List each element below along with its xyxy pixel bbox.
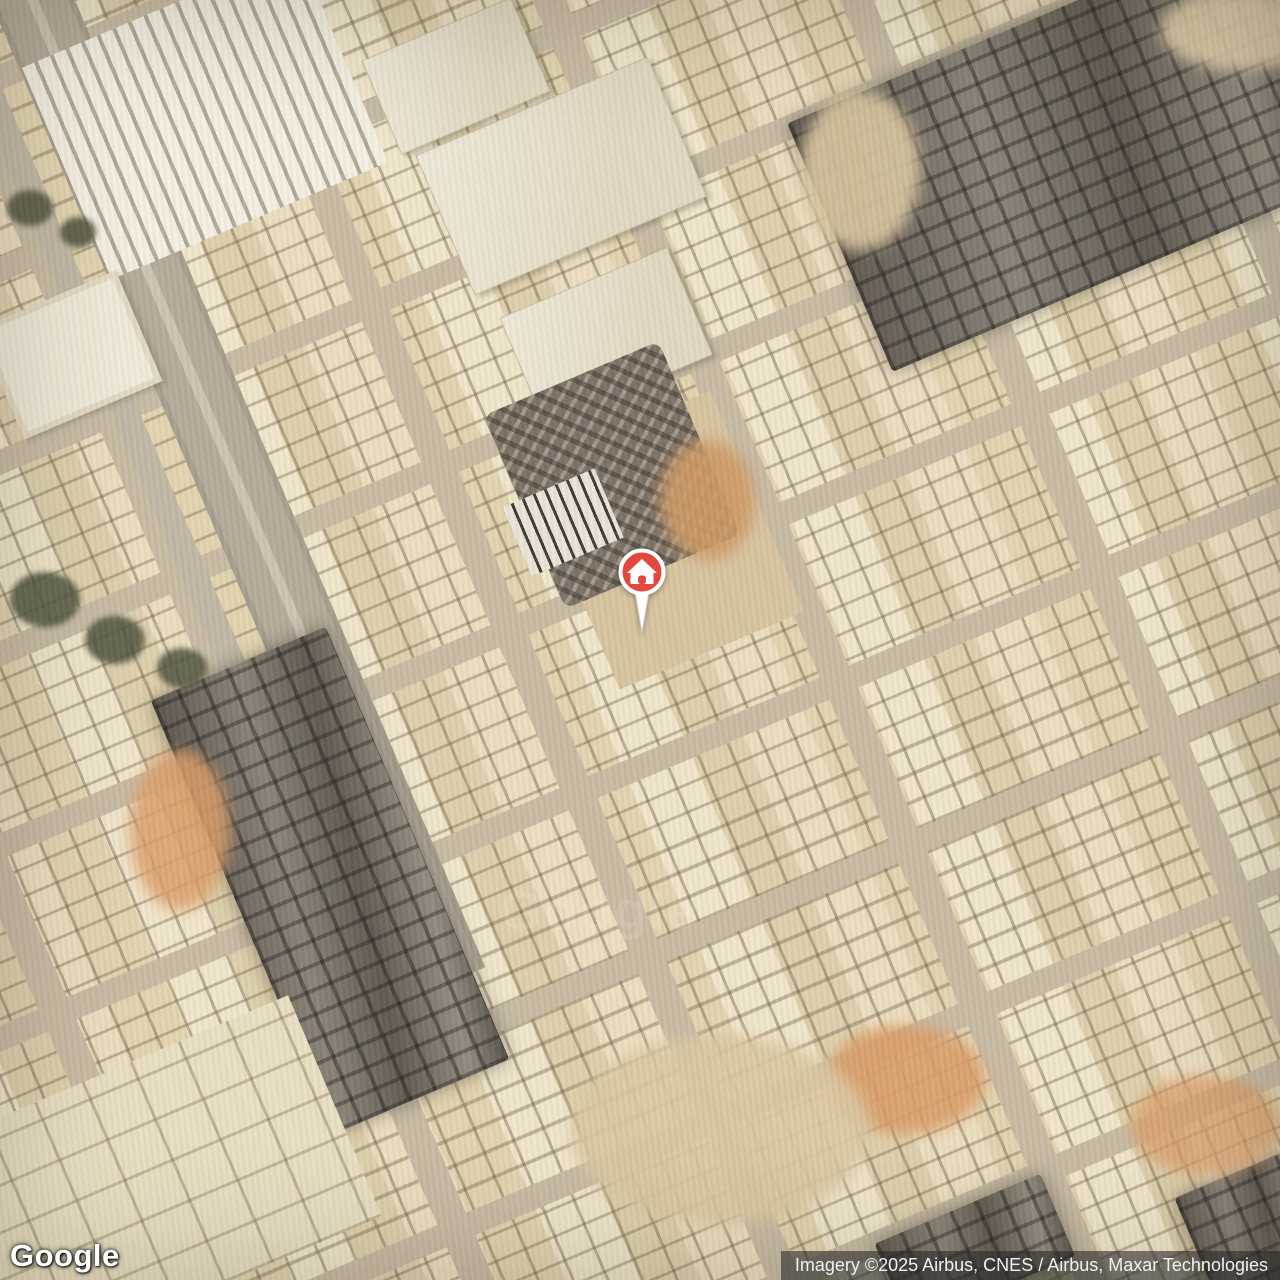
home-marker-pin — [616, 546, 668, 634]
house-door-notch — [638, 576, 646, 585]
home-marker[interactable] — [616, 546, 668, 634]
imagery-attribution: Imagery ©2025 Airbus, CNES / Airbus, Max… — [781, 1251, 1280, 1280]
trees — [60, 217, 96, 247]
google-logo[interactable]: Google — [10, 1238, 120, 1274]
sand-patch — [800, 90, 920, 250]
trees — [10, 572, 80, 627]
satellite-map[interactable]: Google Google Imagery ©2025 Airbus, CNES… — [0, 0, 1280, 1280]
sand-patch — [1130, 1075, 1280, 1175]
trees — [157, 648, 207, 688]
sand-patch — [570, 1035, 870, 1225]
marker-stem — [635, 591, 649, 632]
sand-patch — [130, 750, 230, 910]
trees — [7, 190, 53, 226]
sand-patch — [660, 440, 755, 560]
trees — [85, 616, 145, 664]
